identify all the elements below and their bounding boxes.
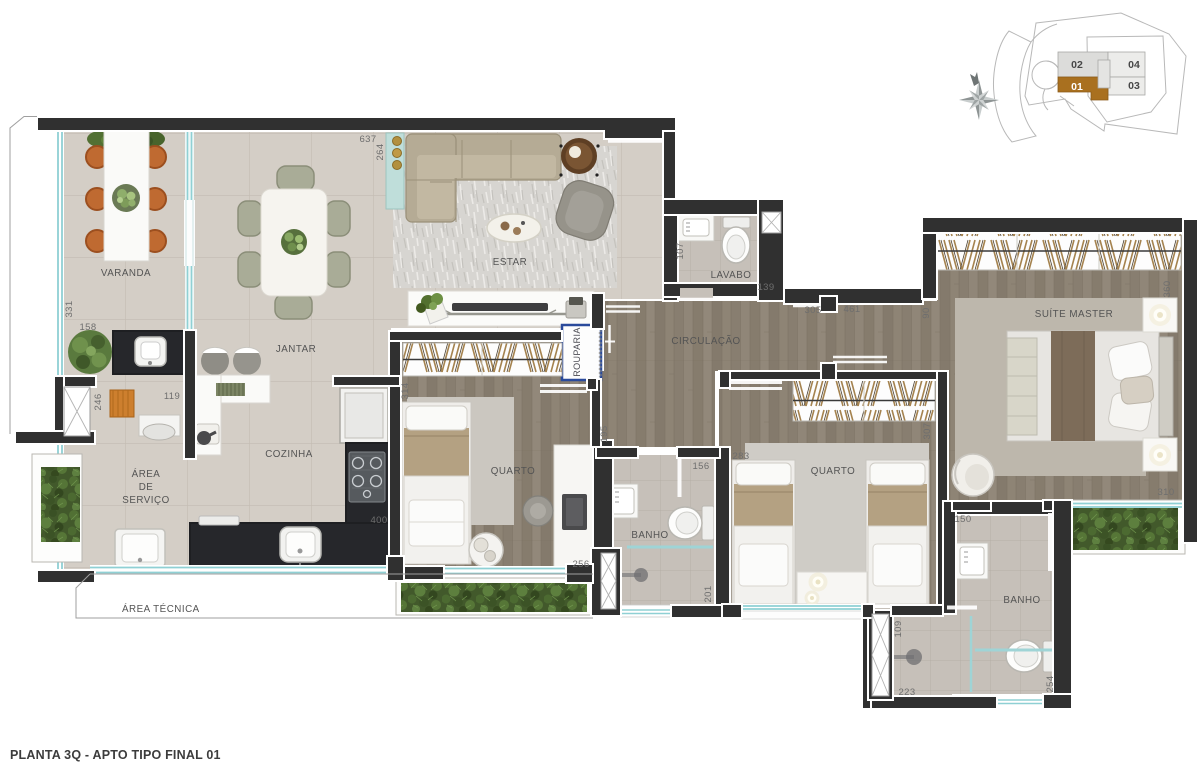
svg-text:400: 400 — [370, 515, 387, 526]
svg-text:QUARTO: QUARTO — [491, 466, 536, 477]
svg-text:02: 02 — [1071, 59, 1083, 71]
svg-text:461: 461 — [843, 304, 860, 315]
svg-text:109: 109 — [893, 620, 904, 637]
svg-text:314: 314 — [400, 382, 411, 399]
svg-text:JANTAR: JANTAR — [276, 344, 316, 355]
svg-text:ÁREA TÉCNICA: ÁREA TÉCNICA — [122, 604, 200, 615]
svg-text:PLANTA 3Q - APTO TIPO FINAL 01: PLANTA 3Q - APTO TIPO FINAL 01 — [10, 748, 221, 762]
svg-text:637: 637 — [359, 134, 376, 145]
svg-text:QUARTO: QUARTO — [811, 466, 856, 477]
svg-text:03: 03 — [1128, 80, 1140, 92]
svg-text:201: 201 — [703, 585, 714, 602]
svg-text:DE: DE — [139, 482, 154, 493]
svg-text:BANHO: BANHO — [1003, 595, 1040, 606]
svg-text:BANHO: BANHO — [631, 530, 668, 541]
svg-text:ÁREA: ÁREA — [132, 469, 161, 480]
svg-text:156: 156 — [692, 461, 709, 472]
svg-text:150: 150 — [954, 514, 971, 525]
svg-text:SERVIÇO: SERVIÇO — [122, 495, 169, 506]
svg-text:246: 246 — [93, 393, 104, 410]
svg-text:360: 360 — [1162, 280, 1173, 297]
svg-text:195: 195 — [599, 425, 610, 442]
svg-text:256: 256 — [572, 559, 589, 570]
svg-text:ROUPARIA: ROUPARIA — [572, 327, 582, 377]
svg-text:CIRCULAÇÃO: CIRCULAÇÃO — [671, 336, 740, 347]
svg-text:119: 119 — [164, 391, 180, 402]
svg-text:90: 90 — [921, 307, 932, 318]
svg-text:SUÍTE MASTER: SUÍTE MASTER — [1035, 309, 1113, 320]
svg-text:254: 254 — [1045, 675, 1056, 692]
svg-text:305: 305 — [804, 305, 821, 316]
svg-text:331: 331 — [64, 300, 75, 317]
svg-text:158: 158 — [79, 322, 96, 333]
svg-text:307: 307 — [922, 422, 933, 439]
svg-text:283: 283 — [732, 451, 749, 462]
svg-text:107: 107 — [675, 242, 686, 259]
svg-text:264: 264 — [375, 143, 386, 160]
svg-text:LAVABO: LAVABO — [711, 270, 752, 281]
svg-text:VARANDA: VARANDA — [101, 268, 151, 279]
svg-text:04: 04 — [1128, 59, 1140, 71]
svg-text:01: 01 — [1071, 81, 1083, 93]
svg-text:ESTAR: ESTAR — [493, 257, 527, 268]
svg-text:223: 223 — [898, 687, 915, 698]
svg-text:COZINHA: COZINHA — [265, 449, 313, 460]
svg-text:310: 310 — [1157, 487, 1174, 498]
svg-text:139: 139 — [757, 282, 774, 293]
